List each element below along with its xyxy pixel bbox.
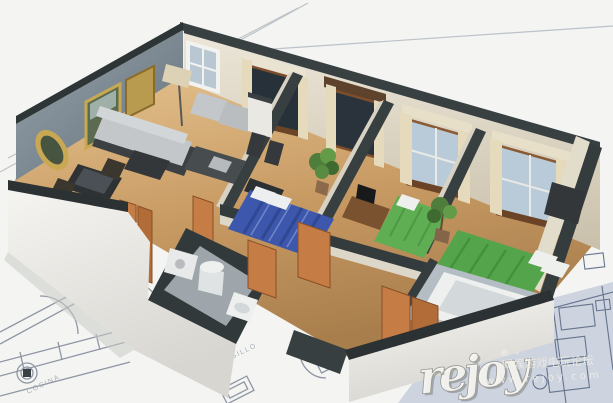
blueprint-column-symbol — [23, 369, 31, 377]
apartment-render-image: A PASILLO COCINA — [0, 0, 613, 403]
door-orange — [248, 240, 276, 298]
screenshot-root: A PASILLO COCINA — [0, 0, 613, 403]
door-orange — [298, 222, 330, 288]
